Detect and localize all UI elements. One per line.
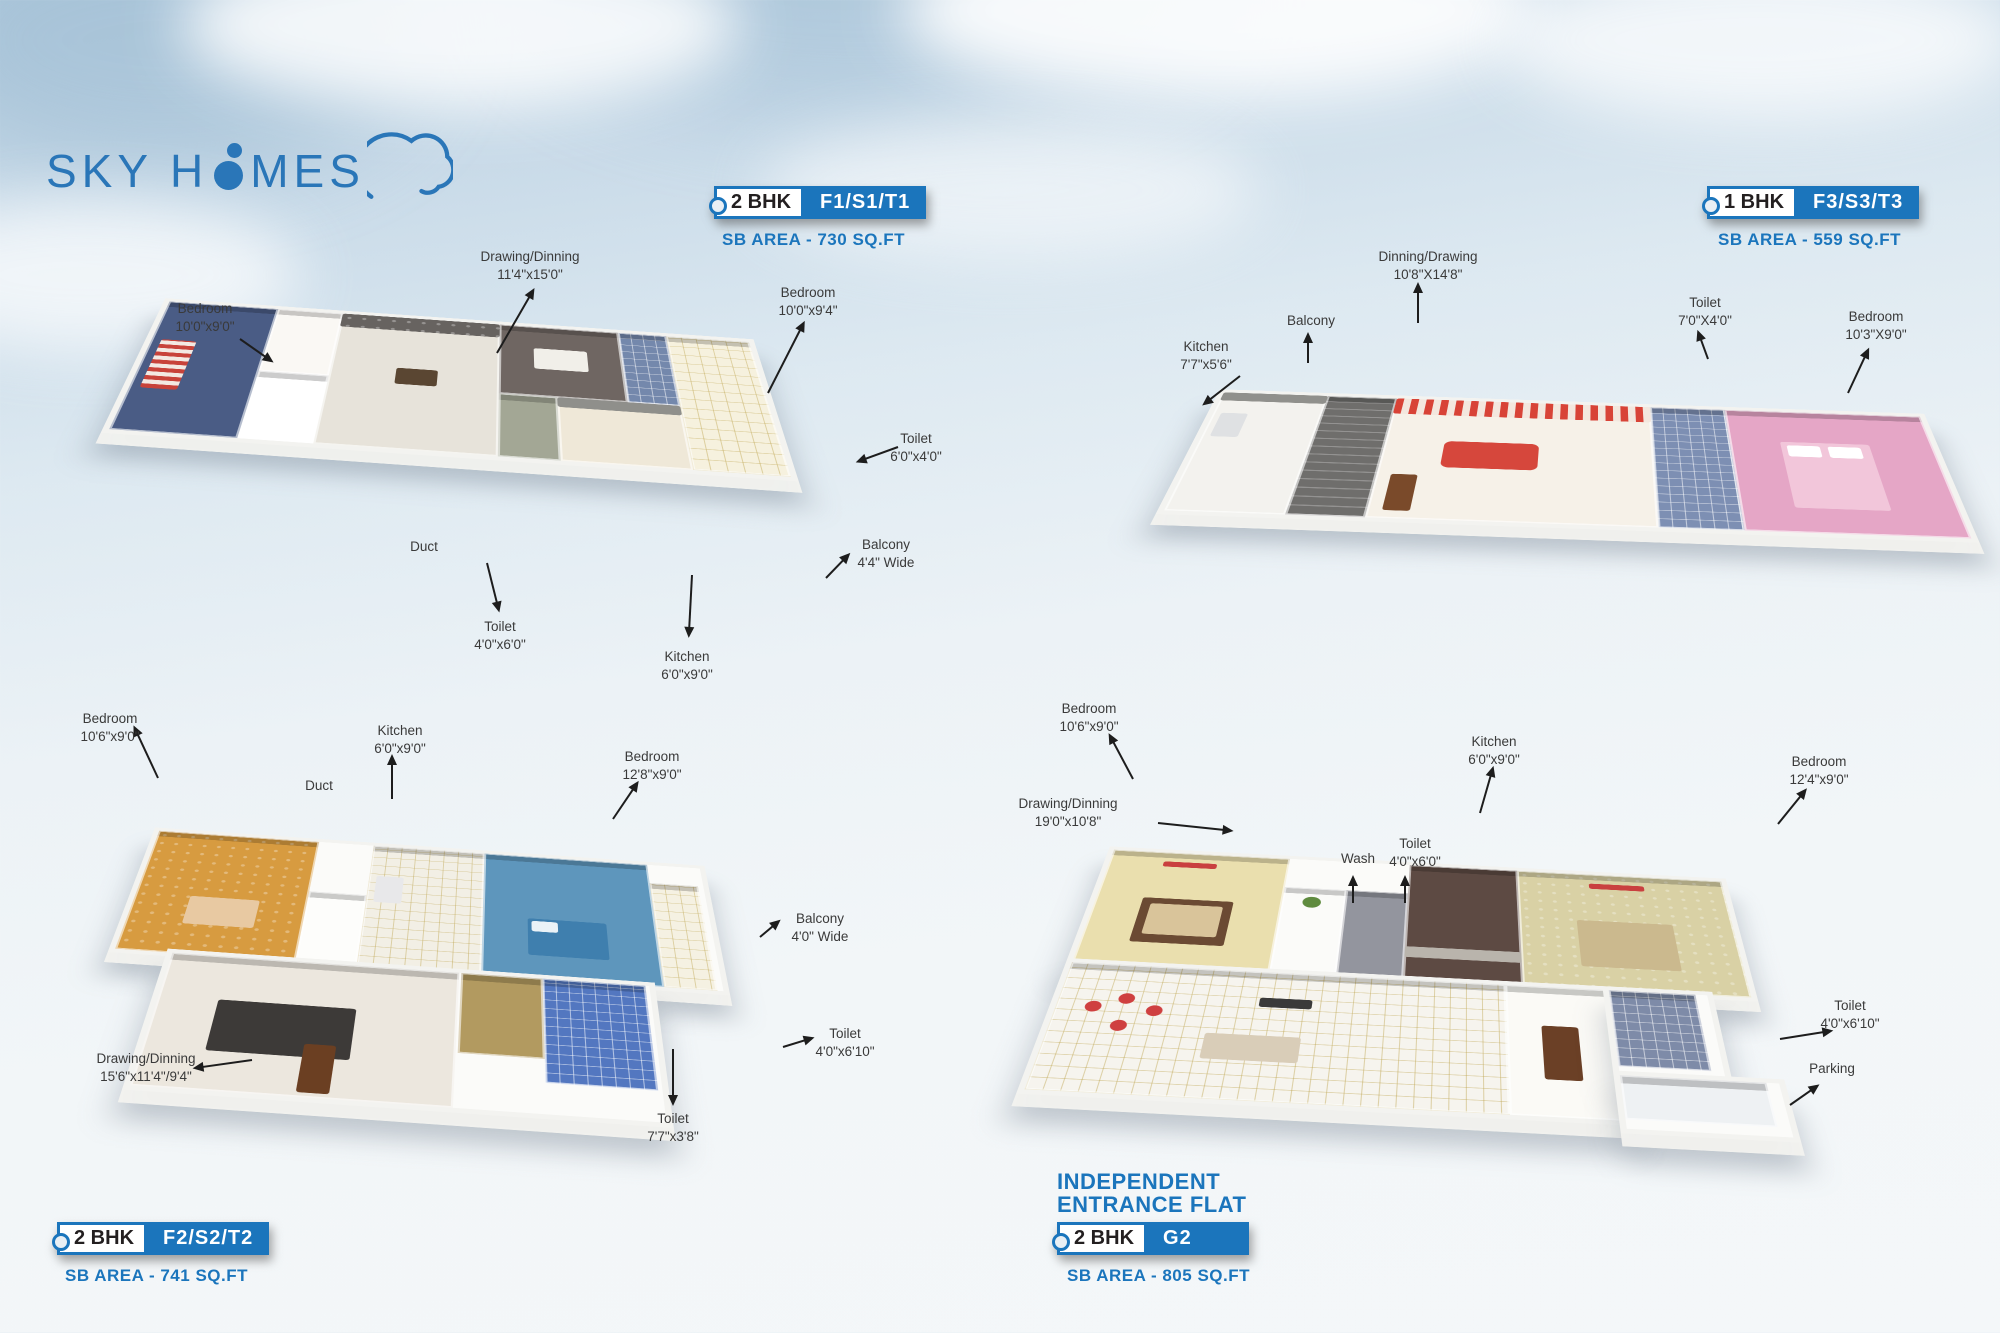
- room-bedroom: [115, 831, 319, 962]
- room-label: Toilet7'0"X4'0": [1678, 294, 1732, 329]
- label-arrow-icon: [1307, 335, 1309, 363]
- room-toilet-2: [542, 979, 658, 1091]
- room-parking: [1620, 1075, 1778, 1127]
- room-label: Wash: [1341, 850, 1375, 868]
- room-bedroom: [1725, 410, 1972, 539]
- room-toilet-2: [1609, 990, 1712, 1071]
- label-arrow-icon: [1404, 878, 1406, 903]
- floorplan-plan2: [1186, 337, 1953, 583]
- plan1-bhk-label: 2 BHK: [714, 186, 804, 219]
- room-label: Kitchen6'0"x9'0": [661, 648, 713, 683]
- room-bedroom: [1072, 850, 1290, 973]
- label-arrow-icon: [783, 1037, 812, 1048]
- room-toilet: [458, 973, 545, 1059]
- label-arrow-icon: [391, 757, 393, 799]
- room-label: Dinning/Drawing10'8"X14'8": [1378, 248, 1477, 283]
- room-drawing-dinning: [313, 314, 500, 457]
- room-label: Parking: [1809, 1060, 1855, 1078]
- room-label: Bedroom10'3"X9'0": [1845, 308, 1906, 343]
- plan1-sb-area: SB AREA - 730 SQ.FT: [722, 230, 905, 250]
- room-toilet: [498, 393, 561, 461]
- room-label: Toilet4'0"x6'0": [1389, 835, 1441, 870]
- plan2-sb-area: SB AREA - 559 SQ.FT: [1718, 230, 1901, 250]
- plan1-badge: 2 BHK F1/S1/T1: [714, 186, 926, 219]
- floorplan-plan1: [127, 240, 782, 524]
- room-label: Bedroom10'0"x9'0": [175, 300, 234, 335]
- plan3-sb-area: SB AREA - 741 SQ.FT: [65, 1266, 248, 1286]
- room-label: Kitchen6'0"x9'0": [374, 722, 426, 757]
- logo-cloud-o-icon: [210, 145, 248, 197]
- room-label: Kitchen6'0"x9'0": [1468, 733, 1520, 768]
- room-duct: [295, 891, 366, 965]
- room-bedroom-2: [1517, 871, 1751, 998]
- label-arrow-icon: [688, 575, 693, 635]
- room-label: Bedroom10'6"x9'0": [1059, 700, 1118, 735]
- plan4-code-label: G2: [1147, 1222, 1249, 1255]
- room-drawing-dinning: [1024, 962, 1509, 1115]
- room-label: Duct: [410, 538, 438, 556]
- room-label: Bedroom12'4"x9'0": [1789, 753, 1848, 788]
- room-label: Toilet4'0"x6'10": [1820, 997, 1879, 1032]
- room-label: Toilet4'0"x6'0": [474, 618, 526, 653]
- room-label: Balcony: [1287, 312, 1335, 330]
- room-label: Drawing/Dinning15'6"x11'4"/9'4": [96, 1050, 195, 1085]
- label-arrow-icon: [672, 1049, 674, 1103]
- plan1-code-label: F1/S1/T1: [804, 186, 926, 219]
- room-bedroom-2: [481, 853, 664, 987]
- label-arrow-icon: [1789, 1085, 1817, 1106]
- room-label: Bedroom12'8"x9'0": [622, 748, 681, 783]
- sky-homes-logo: SKY H MES: [46, 128, 453, 214]
- room-bedroom-2: [499, 325, 628, 403]
- plan2-code-label: F3/S3/T3: [1797, 186, 1919, 219]
- room-dinning-drawing: [1365, 398, 1659, 527]
- room-label: Balcony4'4" Wide: [858, 536, 915, 571]
- room-label: Duct: [305, 777, 333, 795]
- room-label: Kitchen7'7"x5'6": [1180, 338, 1232, 373]
- label-arrow-icon: [1777, 790, 1806, 825]
- plan3-bhk-label: 2 BHK: [57, 1222, 147, 1255]
- plan4-title: INDEPENDENT ENTRANCE FLAT: [1057, 1170, 1246, 1216]
- room-label: Drawing/Dinning11'4"x15'0": [480, 248, 579, 283]
- plan3-code-label: F2/S2/T2: [147, 1222, 269, 1255]
- room-label: Bedroom10'0"x9'4": [778, 284, 837, 319]
- room-kitchen: [1403, 865, 1523, 986]
- logo-text-right: MES: [250, 144, 365, 198]
- label-arrow-icon: [486, 563, 500, 610]
- plan4-sb-area: SB AREA - 805 SQ.FT: [1067, 1266, 1250, 1286]
- label-arrow-icon: [1417, 285, 1419, 323]
- room-label: Toilet4'0"x6'10": [815, 1025, 874, 1060]
- label-arrow-icon: [825, 554, 849, 578]
- plan4-badge: 2 BHK G2: [1057, 1222, 1249, 1255]
- plan2-bhk-label: 1 BHK: [1707, 186, 1797, 219]
- room-label: Toilet7'7"x3'8": [647, 1110, 699, 1145]
- floorplan-plan3: [89, 723, 780, 1238]
- logo-cloud-swirl-icon: [367, 128, 453, 214]
- plan4-bhk-label: 2 BHK: [1057, 1222, 1147, 1255]
- room-kitchen: [557, 397, 693, 470]
- room-kitchen: [356, 846, 484, 975]
- cloud-shape: [1500, 0, 2000, 120]
- plan2-badge: 1 BHK F3/S3/T3: [1707, 186, 1919, 219]
- room-toilet: [1336, 890, 1408, 979]
- label-arrow-icon: [1352, 878, 1354, 903]
- plan3-badge: 2 BHK F2/S2/T2: [57, 1222, 269, 1255]
- logo-text-left: SKY H: [46, 144, 208, 198]
- room-label: Bedroom10'6"x9'0": [80, 710, 139, 745]
- room-label: Drawing/Dinning19'0"x10'8": [1018, 795, 1117, 830]
- room-label: Balcony4'0" Wide: [792, 910, 849, 945]
- room-label: Toilet6'0"x4'0": [890, 430, 942, 465]
